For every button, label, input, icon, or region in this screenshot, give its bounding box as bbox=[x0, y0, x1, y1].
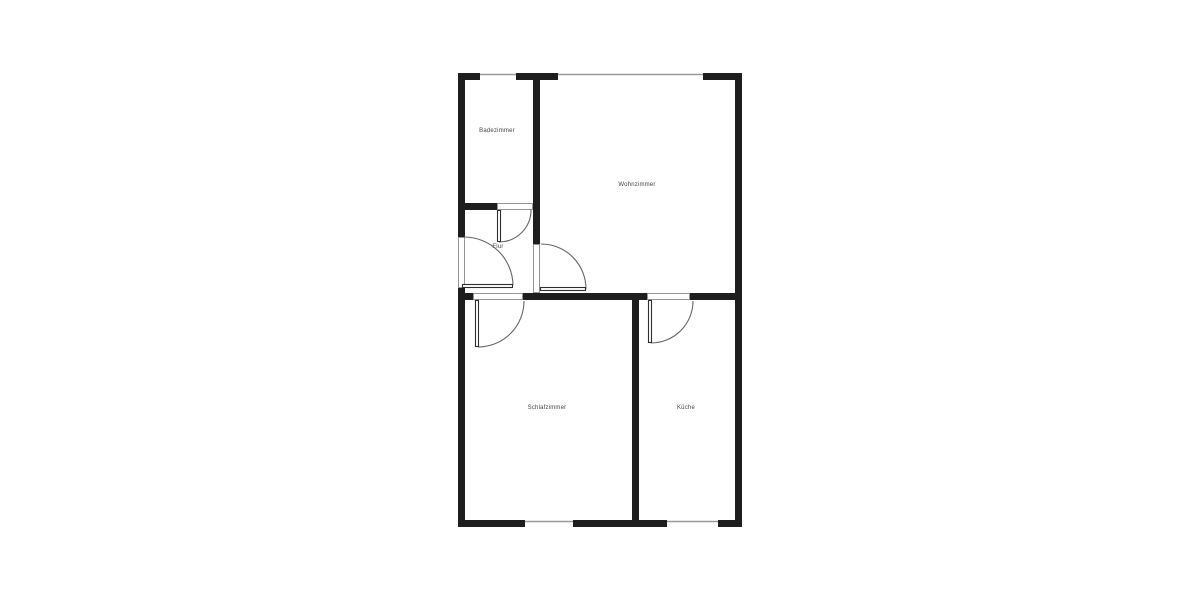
wall-segment bbox=[458, 73, 465, 237]
threshold-wohnzimmer bbox=[534, 245, 540, 293]
door-leaves-layer bbox=[463, 211, 652, 347]
threshold-schlafzimmer bbox=[474, 294, 523, 300]
arc-wohnzimmer bbox=[541, 244, 586, 289]
threshold-entrance bbox=[459, 238, 465, 288]
wall-segment bbox=[690, 293, 735, 300]
wall-segment bbox=[458, 288, 465, 527]
wall-segment bbox=[735, 73, 742, 527]
walls-layer bbox=[458, 73, 742, 527]
room-label-flur: Flur bbox=[492, 244, 503, 250]
floorplan-canvas: BadezimmerWohnzimmerFlurSchlafzimmerKüch… bbox=[0, 0, 1200, 600]
arc-kueche bbox=[651, 301, 693, 343]
wall-segment bbox=[523, 293, 647, 300]
leaf-schlafzimmer bbox=[476, 301, 479, 347]
wall-segment bbox=[632, 300, 639, 520]
leaf-wohnzimmer bbox=[541, 288, 586, 291]
room-label-badezimmer: Badezimmer bbox=[479, 128, 515, 134]
leaf-entrance bbox=[463, 285, 513, 288]
leaf-badezimmer bbox=[498, 211, 501, 242]
floorplan-drawing: BadezimmerWohnzimmerFlurSchlafzimmerKüch… bbox=[0, 0, 1200, 600]
arc-entrance bbox=[464, 237, 513, 285]
room-label-wohnzimmer: Wohnzimmer bbox=[618, 182, 655, 188]
threshold-badezimmer bbox=[498, 204, 533, 210]
room-labels-layer: BadezimmerWohnzimmerFlurSchlafzimmerKüch… bbox=[479, 128, 695, 411]
room-label-kueche: Küche bbox=[677, 405, 695, 411]
threshold-kueche bbox=[648, 294, 690, 300]
wall-segment bbox=[465, 203, 497, 210]
wall-segment bbox=[458, 520, 525, 527]
arc-schlafzimmer bbox=[478, 301, 524, 347]
leaf-kueche bbox=[649, 301, 652, 343]
wall-segment bbox=[533, 80, 540, 244]
wall-segment bbox=[516, 73, 558, 80]
wall-segment bbox=[573, 520, 667, 527]
wall-segment bbox=[465, 293, 473, 300]
room-label-schlafzimmer: Schlafzimmer bbox=[528, 405, 567, 411]
arc-badezimmer bbox=[499, 210, 531, 242]
